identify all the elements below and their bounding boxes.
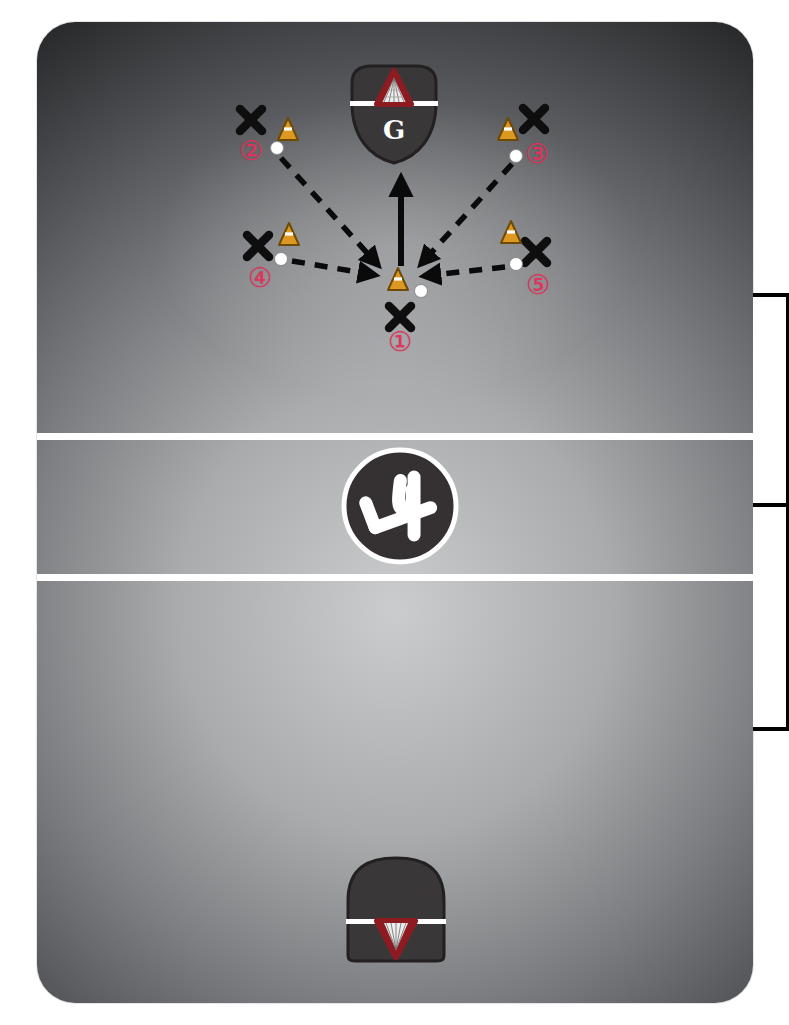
ball-icon-3 — [508, 148, 524, 164]
player-number-1: ① — [388, 328, 412, 355]
pass-arrow-2 — [281, 158, 378, 265]
ball-icon-1 — [413, 283, 429, 299]
cone-icon-3 — [495, 115, 521, 143]
ball-icon-4 — [273, 251, 289, 267]
player-number-2: ② — [239, 137, 263, 164]
cone-icon-5 — [498, 218, 524, 246]
pass-arrow-4 — [292, 261, 375, 275]
x-marker-4 — [240, 228, 276, 264]
pass-arrow-3 — [421, 164, 512, 264]
player-number-3: ③ — [525, 140, 549, 167]
ball-icon-2 — [269, 140, 285, 156]
drill-arrows — [0, 0, 789, 1025]
x-marker-2 — [233, 102, 269, 138]
cone-icon-1 — [385, 265, 411, 293]
player-number-4: ④ — [248, 264, 272, 291]
drill-diagram-page: G — [0, 0, 789, 1025]
ball-icon-5 — [508, 256, 524, 272]
player-number-5: ⑤ — [526, 271, 550, 298]
cone-icon-2 — [275, 115, 301, 143]
cone-icon-4 — [276, 220, 302, 248]
x-marker-3 — [516, 101, 552, 137]
pass-arrow-5 — [424, 267, 505, 276]
